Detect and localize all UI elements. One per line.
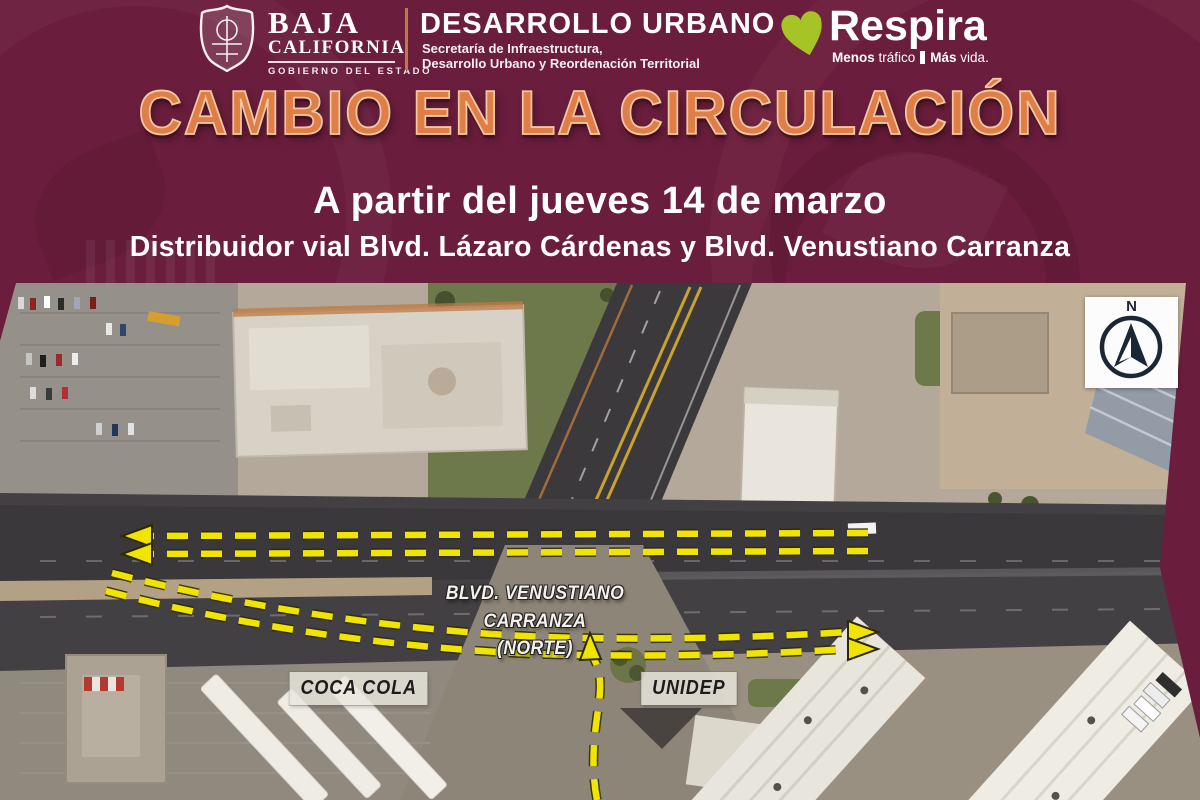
label-line: (NORTE) bbox=[420, 635, 650, 663]
tagline-vida: vida. bbox=[957, 50, 989, 65]
secretariat-subtitle-1: Secretaría de Infraestructura, bbox=[422, 41, 603, 56]
tagline-trafico: tráfico bbox=[875, 50, 916, 65]
logo-baja-text: BAJA bbox=[268, 5, 361, 41]
coca-cola-building bbox=[233, 301, 527, 457]
parking-lot-northwest bbox=[0, 283, 238, 527]
satellite-map: BLVD. VENUSTIANO CARRANZA (NORTE) BLVD. … bbox=[0, 283, 1200, 800]
header-vertical-divider bbox=[405, 8, 408, 70]
secretariat-subtitle-2: Desarrollo Urbano y Reordenación Territo… bbox=[422, 56, 700, 71]
label-unidep: UNIDEP bbox=[641, 672, 736, 705]
logo-california-text: CALIFORNIA bbox=[268, 37, 405, 59]
respira-logo-text: Respira bbox=[829, 2, 987, 51]
traffic-change-infographic: { "theme": { "maroon_bg": "#6a1d3c", "ti… bbox=[0, 0, 1200, 800]
label-coca-cola: COCA COLA bbox=[290, 672, 428, 705]
label-line: CARRANZA bbox=[420, 608, 650, 636]
respira-tagline: Menos tráficoMás vida. bbox=[832, 50, 989, 65]
respira-heart-icon bbox=[780, 10, 830, 65]
north-compass-icon: N bbox=[1085, 297, 1178, 388]
label-blvd-venustiano-carranza-norte: BLVD. VENUSTIANO CARRANZA (NORTE) bbox=[420, 580, 650, 663]
tagline-separator-bar bbox=[920, 51, 925, 64]
secretariat-title: DESARROLLO URBANO bbox=[420, 8, 775, 41]
announcement-date: A partir del jueves 14 de marzo bbox=[0, 180, 1200, 223]
logo-divider-line bbox=[268, 61, 395, 63]
label-line: BLVD. VENUSTIANO bbox=[420, 580, 650, 608]
compass-north-label: N bbox=[1085, 298, 1178, 315]
restaurant-building bbox=[66, 655, 166, 783]
tagline-mas: Más bbox=[930, 50, 956, 65]
baja-california-coat-of-arms-icon bbox=[196, 4, 258, 77]
announcement-location: Distribuidor vial Blvd. Lázaro Cárdenas … bbox=[12, 231, 1188, 264]
tagline-menos: Menos bbox=[832, 50, 875, 65]
announcement-title: CAMBIO EN LA CIRCULACIÓN bbox=[18, 78, 1182, 149]
